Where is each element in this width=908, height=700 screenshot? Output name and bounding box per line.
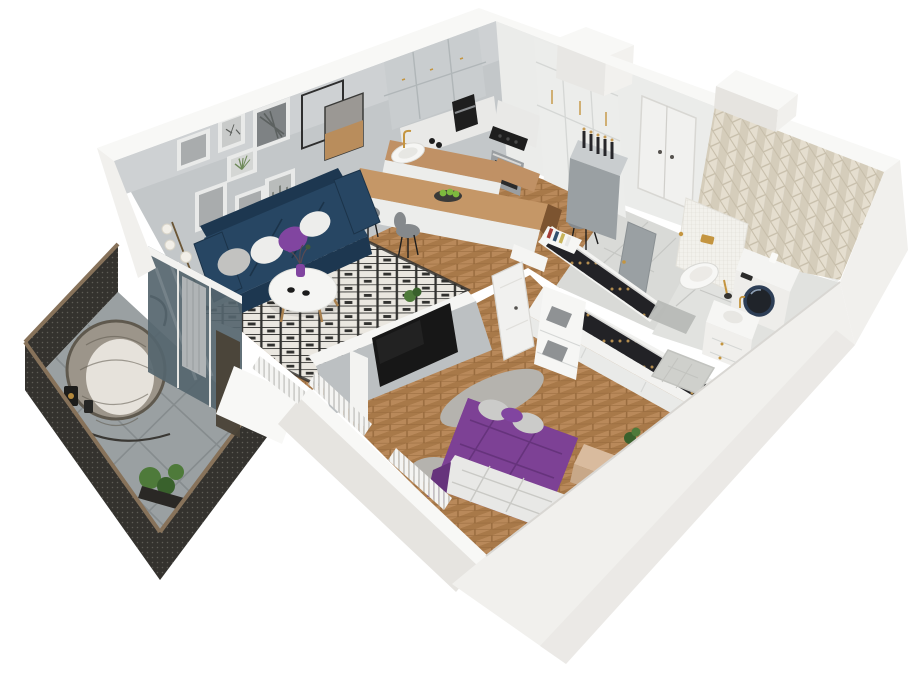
- floorplan-render: [0, 0, 908, 700]
- apartment-scene: [0, 0, 908, 700]
- curtain: [182, 276, 206, 378]
- purple-vase: [296, 264, 305, 277]
- espresso-cup: [302, 290, 310, 296]
- espresso-cup: [287, 287, 295, 293]
- toilet-paper-holder: [679, 232, 683, 236]
